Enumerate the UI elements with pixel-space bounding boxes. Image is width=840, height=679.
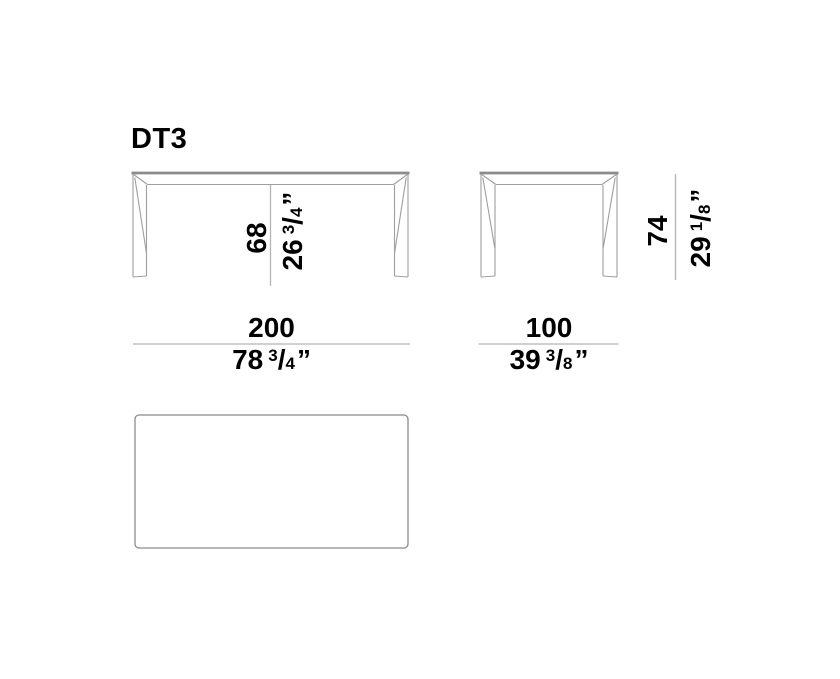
leg-bottom-line <box>395 276 409 277</box>
leg-bottom-line <box>133 276 147 277</box>
inch-mark: ” <box>277 192 308 206</box>
height-dimension-cm: 74 <box>644 215 672 246</box>
fraction-denominator: 4 <box>287 208 306 217</box>
inch-mark: ” <box>297 344 311 375</box>
spec-sheet: DT3 200 783/4” 100 393/8” 68 263/4” 74 2… <box>0 0 840 679</box>
fraction-slash: / <box>555 344 563 375</box>
side-view <box>480 173 619 277</box>
inches-whole: 78 <box>232 344 263 375</box>
height-dimension-inches: 291/8” <box>687 189 715 268</box>
leg-crease-line <box>395 178 407 254</box>
leg-bottom-line <box>481 276 495 277</box>
leg-crease-line <box>135 178 147 254</box>
technical-drawing <box>0 0 840 679</box>
depth-dimension-inches: 393/8” <box>479 346 619 374</box>
inch-mark: ” <box>685 189 716 203</box>
depth-dimension-cm: 100 <box>479 314 619 342</box>
product-code: DT3 <box>131 124 187 154</box>
width-dimension-cm: 200 <box>133 314 410 342</box>
inches-whole: 39 <box>510 344 541 375</box>
fraction-numerator: 3 <box>268 346 277 365</box>
front-right-leg <box>394 174 409 277</box>
tabletop-plan-outline <box>135 415 408 548</box>
side-left-leg <box>481 174 496 277</box>
leg-bottom-line <box>603 276 617 277</box>
fraction-numerator: 3 <box>279 225 298 234</box>
inches-whole: 26 <box>277 239 308 270</box>
fraction-numerator: 3 <box>546 346 555 365</box>
fraction-denominator: 4 <box>285 354 294 373</box>
clearance-dimension-cm: 68 <box>243 222 271 253</box>
leg-crease-line <box>603 178 615 249</box>
top-view <box>135 415 408 548</box>
clearance-dimension-inches: 263/4” <box>279 192 307 271</box>
inch-mark: ” <box>574 344 588 375</box>
side-right-leg <box>602 174 617 277</box>
fraction-denominator: 8 <box>563 354 572 373</box>
leg-crease-line <box>483 178 495 249</box>
front-left-leg <box>133 174 148 277</box>
fraction-slash: / <box>277 217 308 225</box>
fraction-slash: / <box>685 214 716 222</box>
inches-whole: 29 <box>685 236 716 267</box>
fraction-numerator: 1 <box>687 222 706 231</box>
width-dimension-inches: 783/4” <box>133 346 410 374</box>
fraction-denominator: 8 <box>695 205 714 214</box>
